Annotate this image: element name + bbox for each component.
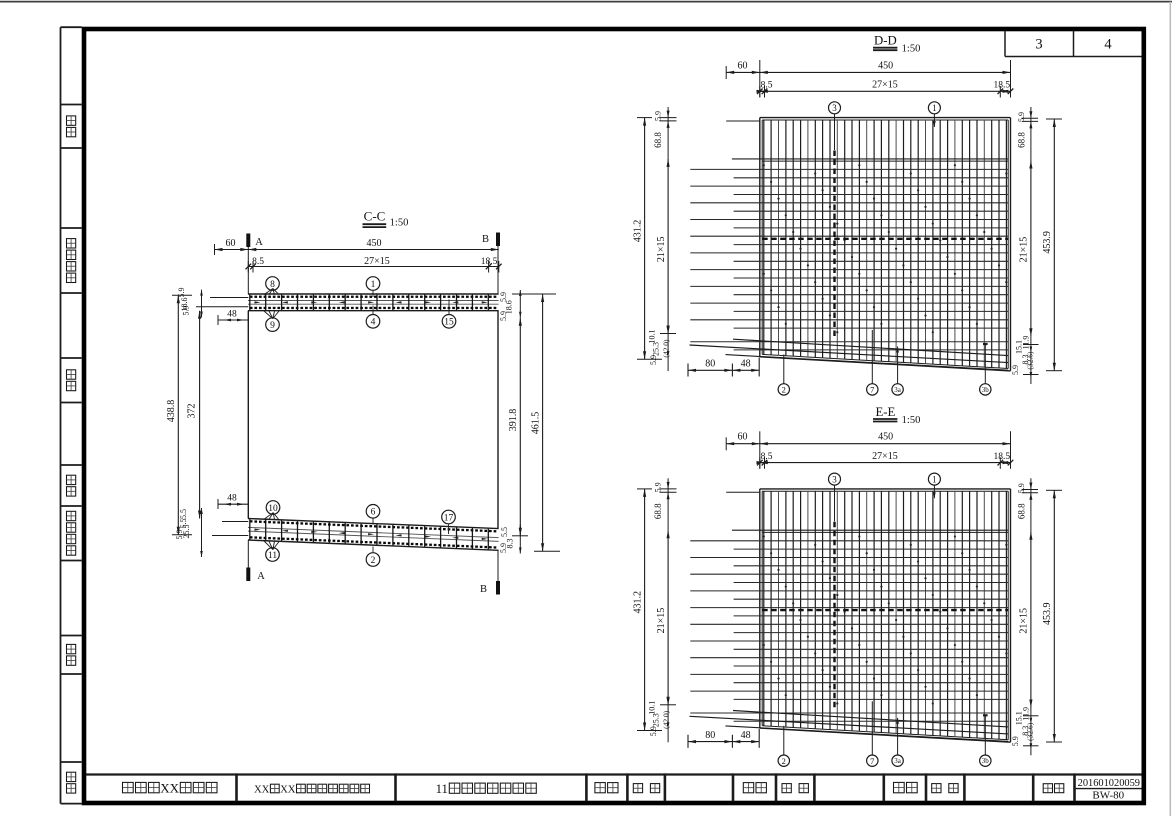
svg-text:5.9: 5.9 — [649, 726, 658, 736]
svg-text:21×15: 21×15 — [1018, 608, 1029, 634]
svg-text:453.9: 453.9 — [1042, 602, 1053, 625]
svg-text:5.9: 5.9 — [1017, 112, 1026, 122]
svg-text:27×15: 27×15 — [364, 256, 390, 267]
svg-text:21×15: 21×15 — [1018, 237, 1029, 263]
svg-text:11.9: 11.9 — [1021, 336, 1030, 350]
svg-text:3a: 3a — [894, 757, 902, 765]
svg-text:B: B — [480, 584, 487, 595]
svg-text:80: 80 — [705, 359, 715, 370]
svg-text:60: 60 — [738, 60, 748, 71]
svg-text:461.5: 461.5 — [531, 412, 542, 435]
svg-text:5.9: 5.9 — [182, 306, 191, 316]
svg-text:XX: XX — [160, 781, 179, 796]
svg-text:1:50: 1:50 — [902, 415, 921, 426]
svg-text:1: 1 — [371, 280, 376, 290]
svg-text:2: 2 — [782, 756, 786, 766]
svg-text:5.5: 5.5 — [179, 509, 188, 519]
svg-text:5.9: 5.9 — [499, 543, 508, 553]
svg-text:8.5: 8.5 — [761, 452, 773, 462]
svg-text:450: 450 — [878, 432, 893, 443]
svg-text:1: 1 — [932, 103, 937, 113]
svg-text:3: 3 — [1035, 37, 1042, 53]
svg-text:17: 17 — [444, 513, 454, 523]
svg-text:5.9: 5.9 — [649, 355, 658, 365]
svg-text:5.9: 5.9 — [1011, 736, 1020, 746]
svg-text:18.5: 18.5 — [993, 452, 1010, 462]
svg-text:C-C: C-C — [364, 209, 386, 224]
svg-text:5.9: 5.9 — [654, 111, 663, 121]
svg-text:48: 48 — [227, 309, 237, 319]
svg-text:15: 15 — [444, 318, 454, 328]
svg-text:21×15: 21×15 — [656, 608, 667, 634]
svg-text:25.3: 25.3 — [652, 342, 661, 356]
svg-text:18.5: 18.5 — [993, 81, 1010, 91]
svg-text:11: 11 — [436, 782, 448, 796]
svg-text:2: 2 — [782, 385, 786, 395]
svg-text:68.8: 68.8 — [1016, 503, 1026, 519]
svg-text:431.2: 431.2 — [633, 220, 644, 243]
svg-text:391.8: 391.8 — [508, 409, 519, 432]
svg-text:9: 9 — [270, 321, 275, 331]
svg-text:1:50: 1:50 — [902, 44, 921, 55]
svg-text:10.1: 10.1 — [648, 330, 657, 344]
svg-text:11.9: 11.9 — [1021, 707, 1030, 721]
svg-text:(32.6): (32.6) — [1026, 722, 1035, 741]
svg-text:80: 80 — [705, 730, 715, 741]
svg-text:25.3: 25.3 — [652, 713, 661, 727]
svg-text:4: 4 — [1104, 37, 1112, 53]
svg-text:21×15: 21×15 — [656, 236, 667, 262]
svg-text:E-E: E-E — [875, 405, 895, 419]
svg-text:7: 7 — [870, 385, 874, 395]
svg-text:60: 60 — [738, 432, 748, 443]
svg-text:48: 48 — [741, 359, 751, 370]
svg-text:2: 2 — [371, 556, 376, 566]
svg-text:XX: XX — [280, 784, 296, 796]
svg-text:450: 450 — [878, 60, 893, 71]
svg-text:27×15: 27×15 — [872, 451, 898, 462]
svg-text:(42.0): (42.0) — [662, 710, 671, 729]
svg-text:60: 60 — [226, 238, 236, 249]
svg-text:6: 6 — [371, 508, 376, 518]
svg-text:1: 1 — [932, 474, 937, 484]
svg-text:5.9: 5.9 — [1017, 483, 1026, 493]
svg-text:7: 7 — [870, 756, 874, 766]
svg-text:5.9: 5.9 — [1011, 365, 1020, 375]
svg-text:1:50: 1:50 — [390, 217, 409, 228]
svg-text:8.5: 8.5 — [761, 81, 773, 91]
svg-text:B: B — [482, 234, 489, 245]
svg-text:48: 48 — [741, 730, 751, 741]
svg-text:8.5: 8.5 — [252, 257, 264, 267]
svg-text:48: 48 — [227, 494, 237, 504]
svg-text:4: 4 — [371, 318, 376, 328]
svg-text:10.1: 10.1 — [648, 701, 657, 715]
svg-text:5.9: 5.9 — [654, 482, 663, 492]
svg-text:18.5: 18.5 — [481, 257, 498, 267]
svg-text:BW-80: BW-80 — [1092, 789, 1124, 801]
svg-text:3b: 3b — [982, 757, 990, 765]
svg-text:D-D: D-D — [874, 34, 897, 48]
svg-text:XX: XX — [254, 784, 270, 796]
svg-text:68.8: 68.8 — [653, 503, 663, 519]
svg-text:A: A — [257, 571, 265, 582]
svg-text:3: 3 — [832, 474, 837, 484]
svg-text:201601020059: 201601020059 — [1078, 778, 1140, 789]
svg-text:372: 372 — [186, 404, 197, 419]
svg-text:10: 10 — [268, 504, 278, 514]
svg-text:3a: 3a — [894, 386, 902, 394]
svg-text:438.8: 438.8 — [166, 400, 177, 423]
svg-text:3: 3 — [832, 103, 837, 113]
svg-text:3b: 3b — [982, 386, 990, 394]
svg-text:68.8: 68.8 — [1016, 132, 1026, 148]
svg-text:A: A — [255, 237, 263, 248]
svg-text:(32.6): (32.6) — [1026, 351, 1035, 370]
svg-text:450: 450 — [367, 238, 382, 249]
svg-text:453.9: 453.9 — [1042, 231, 1053, 254]
svg-text:431.2: 431.2 — [633, 591, 644, 614]
svg-text:27×15: 27×15 — [872, 80, 898, 91]
svg-text:5.9: 5.9 — [499, 311, 508, 321]
svg-text:11: 11 — [268, 551, 277, 561]
svg-text:(42.0): (42.0) — [662, 339, 671, 358]
svg-text:5.5: 5.5 — [500, 527, 509, 537]
svg-text:68.8: 68.8 — [653, 132, 663, 148]
